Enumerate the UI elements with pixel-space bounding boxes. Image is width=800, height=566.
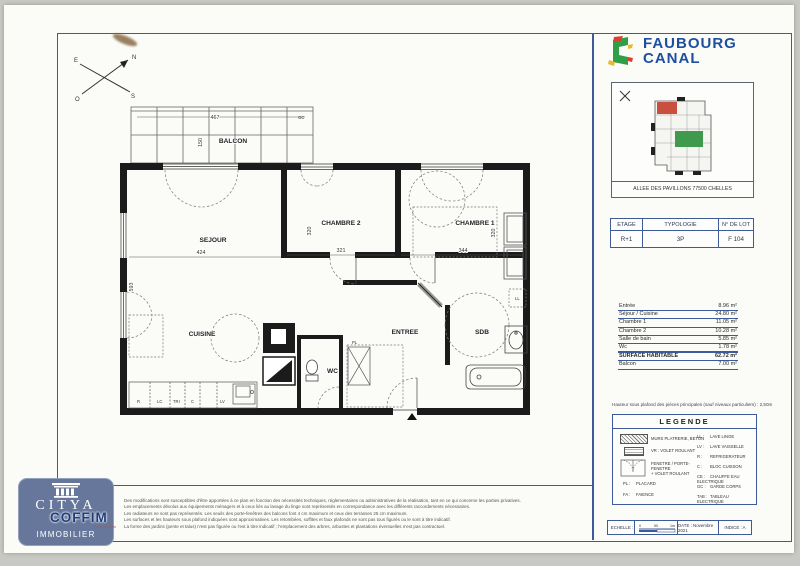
room-entree: ENTREE xyxy=(392,329,419,336)
legend-item-fa: FA :FAIENCE xyxy=(623,492,654,497)
compass-n: N xyxy=(132,55,136,61)
dim-balcon: 467 xyxy=(211,115,220,121)
brand-name: FAUBOURG CANAL xyxy=(643,36,737,66)
legend-text: GARDE CORPS xyxy=(710,484,741,489)
column-icon xyxy=(50,483,82,498)
legend-abbr: LL : xyxy=(697,434,710,439)
surface-label: Salle de bain xyxy=(619,336,651,343)
sdb-door-line xyxy=(418,283,442,307)
tag-gc: GC xyxy=(298,115,304,120)
scale-bar: 0 50 1m xyxy=(637,523,677,533)
ceiling-height-note: Hauteur sous plafond des pièces principa… xyxy=(612,402,784,408)
site-mini-plan xyxy=(647,95,717,179)
tag-r: R xyxy=(137,399,140,404)
lot-numero: F 104 xyxy=(719,231,753,247)
tag-c: C xyxy=(191,399,194,404)
scale-bar-box: 0 50 1m xyxy=(634,520,680,535)
surface-row: Entrée8.96 m² xyxy=(618,303,738,311)
surface-row: Wc1.78 m² xyxy=(618,344,738,352)
compass-o: O xyxy=(75,97,80,103)
surface-label: Entrée xyxy=(619,303,635,310)
surface-label: Chambre 2 xyxy=(619,328,646,335)
legend-item-r: R :REFRIGERATEUR xyxy=(697,454,746,459)
dim-sejour-h: 593 xyxy=(129,283,135,292)
x-mark-icon xyxy=(618,89,632,103)
floor-plan: 467 GC 150 BALCON xyxy=(105,95,545,440)
surface-row: Chambre 210.28 m² xyxy=(618,328,738,336)
surface-value: 11.05 m² xyxy=(716,319,737,326)
surface-total-row: SURFACE HABITABLE62.72 m² xyxy=(618,352,738,361)
dim-ch1-h: 320 xyxy=(491,229,497,238)
legend-text: PLACARD xyxy=(636,481,656,486)
disclaimer-line: La forme des jardins (pente et talus) n'… xyxy=(124,524,584,530)
legend-text: LAVE VAISSELLE xyxy=(710,444,744,449)
legend-abbr: FA : xyxy=(623,492,636,497)
scale-tick-0: 0 xyxy=(639,524,641,528)
legend-text: REFRIGERATEUR xyxy=(710,454,746,459)
surface-label: Séjour / Cuisine xyxy=(619,311,658,318)
unit-highlight-green xyxy=(675,131,703,147)
surface-table: Entrée8.96 m² Séjour / Cuisine24.80 m² C… xyxy=(618,303,738,370)
legend-item-gc: GC :GARDE CORPS xyxy=(697,484,741,489)
dim-ch2-h: 320 xyxy=(307,227,313,236)
surface-value: 5.85 m² xyxy=(718,336,737,343)
surface-value: 24.80 m² xyxy=(715,311,737,318)
scale-tick-50: 50 xyxy=(654,524,658,528)
window-icon xyxy=(620,459,646,477)
date-box: DATE : Novembre 2021 xyxy=(677,520,721,535)
placard xyxy=(348,347,370,385)
room-chambre2: CHAMBRE 2 xyxy=(321,220,361,227)
surface-label: SURFACE HABITABLE xyxy=(619,353,678,360)
legend-text: FAIENCE xyxy=(636,492,654,497)
surface-value: 10.28 m² xyxy=(715,328,737,335)
room-sdb: SDB xyxy=(475,329,489,336)
room-chambre1: CHAMBRE 1 xyxy=(455,220,495,227)
north-arrow xyxy=(120,60,128,68)
legend-item-c: C :BLOC CUISSON xyxy=(697,464,742,469)
unit-highlight-red xyxy=(657,102,677,114)
door-arcs xyxy=(127,170,509,408)
surface-row: Chambre 111.05 m² xyxy=(618,319,738,327)
interior-walls xyxy=(263,170,530,408)
scanned-floor-plan-sheet: E N O S 467 GC 150 BALCON xyxy=(0,0,800,566)
scale-tick-1m: 1m xyxy=(670,524,675,528)
surface-label: Balcon xyxy=(619,361,636,368)
compass-e: E xyxy=(74,58,78,64)
legend-item-ll: LL :LAVE LINGE xyxy=(697,434,734,439)
duct-shaft xyxy=(271,329,286,344)
legend-text: BLOC CUISSON xyxy=(710,464,742,469)
room-balcon: BALCON xyxy=(219,138,247,145)
surface-row: Balcon7.00 m² xyxy=(618,361,738,369)
indice-box: INDICE : A xyxy=(718,520,752,535)
lot-header-typologie: TYPOLOGIE xyxy=(643,219,719,231)
lot-header-etage: ETAGE xyxy=(611,219,643,231)
surface-value: 8.96 m² xyxy=(718,303,737,310)
scale-label-box: ECHELLE : xyxy=(607,520,637,535)
lot-etage: R+1 xyxy=(611,231,643,247)
column-divider xyxy=(592,33,594,540)
wardrobe xyxy=(504,213,526,279)
dim-balcon-depth: 150 xyxy=(198,138,204,147)
coffim-logo: COFFIM xyxy=(50,510,108,525)
room-sejour: SEJOUR xyxy=(199,237,226,244)
wall-hatch-swatch xyxy=(620,434,648,444)
disclaimer: Des modifications sont susceptibles d'êt… xyxy=(124,498,584,530)
surface-row: Séjour / Cuisine24.80 m² xyxy=(618,311,738,319)
tag-lv: LV xyxy=(220,399,225,404)
legend-abbr: R : xyxy=(697,454,710,459)
surface-row: Salle de bain5.85 m² xyxy=(618,336,738,344)
lot-header-numero: N° DE LOT xyxy=(719,219,753,231)
citya-sub: IMMOBILIER xyxy=(19,530,113,539)
lot-typologie: 3P xyxy=(643,231,719,247)
legend-abbr: PL : xyxy=(623,481,636,486)
legend-abbr: C : xyxy=(697,464,710,469)
legend-text: LAVE LINGE xyxy=(710,434,734,439)
coffim-tagline: pour demain xyxy=(95,525,116,529)
site-locator-box: ALLEE DES PAVILLONS 77500 CHELLES xyxy=(611,82,754,198)
dim-sejour-w: 424 xyxy=(197,250,206,256)
surface-label: Wc xyxy=(619,344,627,351)
entrance-marker xyxy=(407,413,417,420)
balcony-deck xyxy=(131,107,313,163)
kitchen-counter xyxy=(129,382,257,408)
lot-table: ETAGE TYPOLOGIE N° DE LOT R+1 3P F 104 xyxy=(610,218,754,248)
brand-icon xyxy=(606,36,636,66)
legend-item-ce: CE :CHAUFFE EAU ELECTRIQUE xyxy=(697,474,756,484)
surface-label: Chambre 1 xyxy=(619,319,646,326)
legend-item-shutter: VR : VOLET ROULANT xyxy=(651,448,695,453)
plan-area-bottom-line xyxy=(57,485,592,486)
legend-abbr: GC : xyxy=(697,484,710,489)
bathtub xyxy=(466,365,525,389)
legend-item-tab: TAB :TABLEAU ELECTRIQUE xyxy=(697,494,756,504)
legend-title: LEGENDE xyxy=(613,415,756,429)
room-wc: WC xyxy=(327,368,338,375)
tag-tri: TRI xyxy=(173,399,180,404)
legend-item-lv: LV :LAVE VAISSELLE xyxy=(697,444,744,449)
toilet xyxy=(306,360,318,381)
legend-box: LEGENDE MURS PLATRERIE, BETON VR : VOLET… xyxy=(612,414,757,505)
surface-value: 1.78 m² xyxy=(718,344,737,351)
site-address: ALLEE DES PAVILLONS 77500 CHELLES xyxy=(612,181,753,197)
brand-line1: FAUBOURG xyxy=(643,36,737,51)
dim-ch2-w: 321 xyxy=(337,248,346,254)
legend-abbr: LV : xyxy=(697,444,710,449)
room-cuisine: CUISINE xyxy=(189,331,216,338)
legend-item-pl: PL :PLACARD xyxy=(623,481,656,486)
tag-pl: PL xyxy=(352,340,358,345)
surface-value: 7.00 m² xyxy=(718,361,737,368)
windows xyxy=(121,164,483,410)
tag-lc: LC xyxy=(157,399,162,404)
brand-line2: CANAL xyxy=(643,51,737,66)
tag-ll: LL xyxy=(515,296,520,301)
surface-value: 62.72 m² xyxy=(715,353,737,360)
shutter-icon xyxy=(624,447,644,456)
dim-ch1-w: 344 xyxy=(459,248,468,254)
